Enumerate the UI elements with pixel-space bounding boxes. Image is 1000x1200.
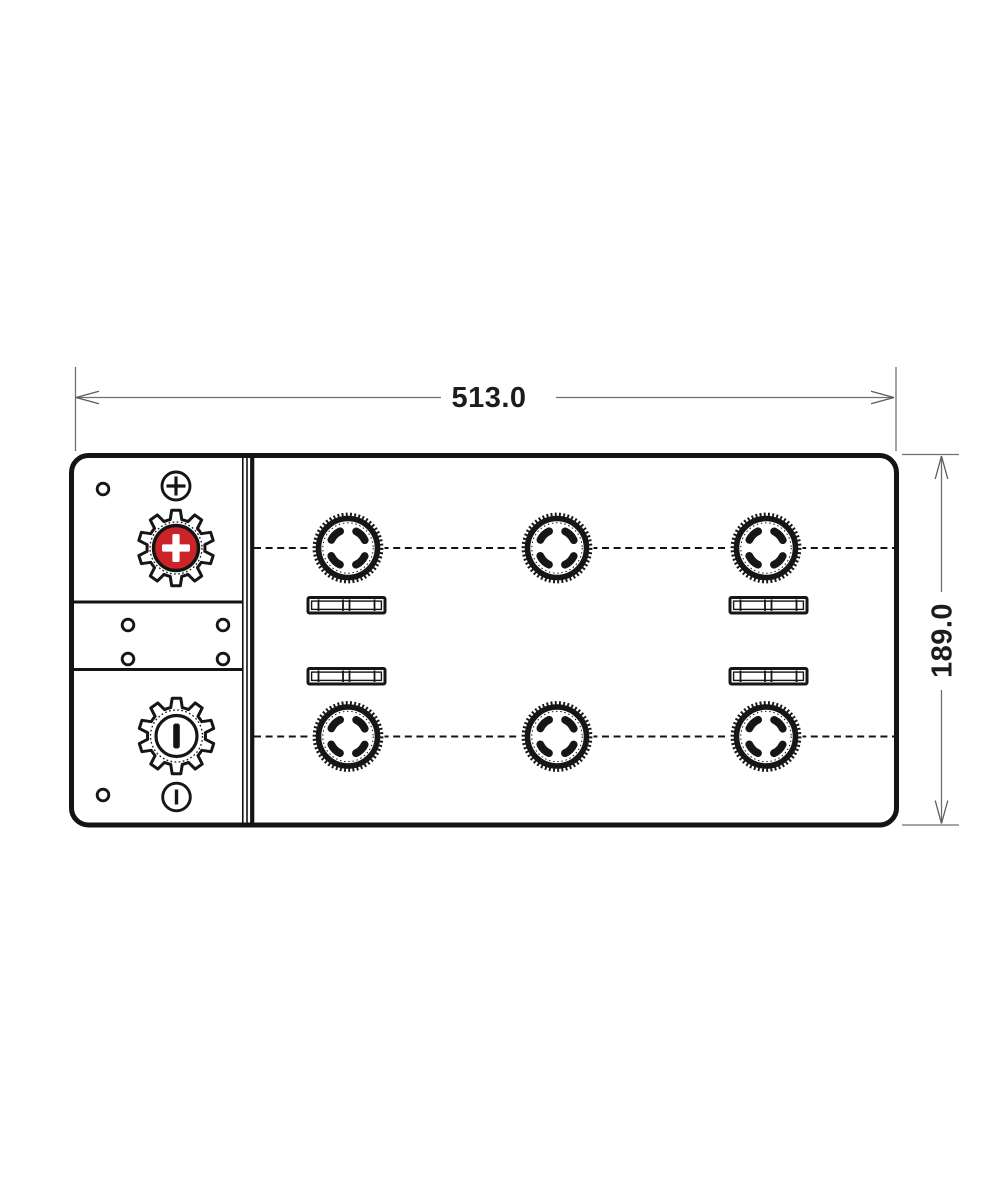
vent-cap [521, 512, 594, 585]
minus-bar-icon [173, 724, 180, 749]
negative-symbol [163, 783, 191, 811]
vent-cap [730, 700, 803, 773]
handle-slot [730, 598, 807, 614]
vent-cap [312, 700, 385, 773]
small-hole [122, 653, 134, 665]
small-hole [217, 619, 229, 631]
handle-slot [308, 669, 385, 685]
width-dimension-label: 513.0 [451, 382, 526, 414]
battery-technical-drawing: 513.0 189.0 [0, 0, 1000, 1200]
small-hole [217, 653, 229, 665]
positive-symbol [162, 472, 190, 500]
negative-terminal [139, 698, 213, 774]
vent-cap [730, 512, 803, 585]
small-hole [97, 789, 109, 801]
height-dimension-label: 189.0 [927, 603, 959, 678]
vent-cap [521, 700, 594, 773]
positive-terminal [139, 510, 213, 586]
battery-body [71, 456, 897, 826]
drawing-canvas: 513.0 189.0 [0, 0, 1000, 1200]
small-hole [122, 619, 134, 631]
vent-cap [312, 512, 385, 585]
small-hole [97, 483, 109, 495]
handle-slot [308, 598, 385, 614]
handle-slot [730, 669, 807, 685]
